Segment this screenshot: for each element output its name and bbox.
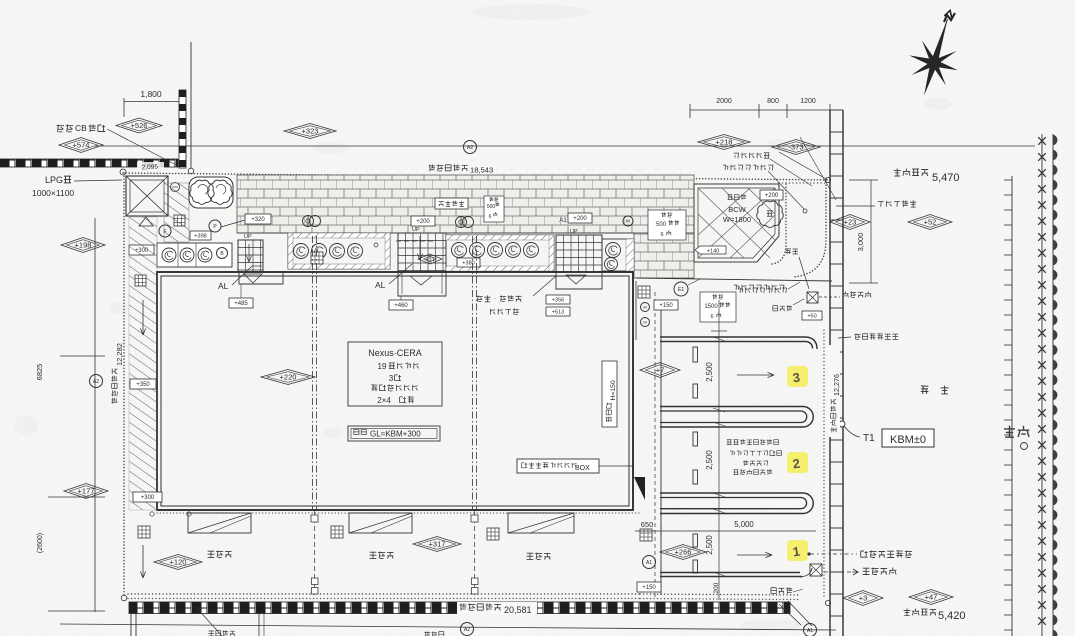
- svg-text:-373: -373: [788, 143, 803, 152]
- svg-text:CB: CB: [75, 123, 87, 133]
- svg-text:+198: +198: [75, 241, 92, 250]
- svg-text:200: 200: [713, 582, 720, 593]
- svg-text:+52: +52: [924, 218, 937, 227]
- svg-text:+398: +398: [194, 233, 206, 239]
- svg-text:+574: +574: [73, 141, 90, 150]
- svg-text:A1: A1: [559, 218, 567, 224]
- svg-text:H=150: H=150: [610, 380, 617, 400]
- svg-text:1200: 1200: [800, 98, 816, 105]
- svg-text:+47: +47: [925, 593, 938, 602]
- svg-text:A2: A2: [93, 379, 99, 385]
- svg-text:+200: +200: [765, 193, 779, 199]
- svg-text:+218: +218: [716, 138, 733, 147]
- svg-text:12,282: 12,282: [115, 343, 124, 366]
- svg-text:+356: +356: [552, 297, 564, 303]
- svg-text:+200: +200: [416, 219, 430, 225]
- svg-text:+140: +140: [707, 249, 719, 255]
- svg-text:+485: +485: [234, 301, 248, 307]
- svg-text:+320: +320: [251, 217, 265, 223]
- svg-text:(2600): (2600): [37, 533, 44, 553]
- svg-text:3: 3: [389, 374, 394, 383]
- svg-text:+350: +350: [136, 382, 150, 388]
- svg-text:19: 19: [378, 362, 387, 371]
- svg-text:+300: +300: [141, 495, 155, 501]
- svg-text:GL=KBM+300: GL=KBM+300: [370, 430, 421, 439]
- svg-text:5,420: 5,420: [938, 610, 966, 622]
- svg-text:UP: UP: [570, 229, 578, 235]
- svg-text:+220: +220: [280, 373, 297, 382]
- svg-text:A2: A2: [464, 627, 470, 633]
- svg-text:AL: AL: [218, 281, 229, 291]
- svg-text:T1: T1: [863, 433, 875, 444]
- svg-text:UP: UP: [244, 234, 252, 240]
- svg-text:+200: +200: [573, 216, 587, 222]
- svg-text:12,276: 12,276: [832, 374, 841, 396]
- svg-text:F: F: [163, 229, 166, 235]
- svg-text:2,500: 2,500: [705, 362, 714, 382]
- svg-text:W: W: [643, 304, 647, 309]
- svg-text:+266: +266: [675, 548, 692, 557]
- svg-text:5,470: 5,470: [932, 172, 960, 184]
- svg-text:18,543: 18,543: [470, 166, 493, 175]
- svg-text:A2: A2: [467, 145, 473, 151]
- svg-text:+177: +177: [78, 487, 95, 496]
- svg-text:3,000: 3,000: [856, 233, 865, 252]
- svg-text:20,581: 20,581: [504, 605, 532, 615]
- svg-text:+317: +317: [429, 540, 446, 549]
- svg-text:6: 6: [489, 214, 492, 220]
- svg-text:6: 6: [710, 314, 713, 320]
- svg-text:W=1800: W=1800: [723, 215, 751, 224]
- svg-text:800: 800: [767, 98, 779, 105]
- svg-text:+3: +3: [859, 594, 868, 603]
- svg-text:+50: +50: [807, 313, 816, 319]
- svg-text:LPG: LPG: [45, 175, 63, 185]
- svg-text:2000: 2000: [716, 98, 732, 105]
- svg-text:2,095: 2,095: [142, 164, 159, 172]
- svg-text:+526: +526: [131, 121, 148, 130]
- svg-text:+7: +7: [656, 366, 665, 375]
- svg-text:A1: A1: [807, 628, 813, 634]
- svg-text:6825: 6825: [35, 364, 44, 381]
- svg-text:650: 650: [641, 520, 654, 529]
- svg-text:Nexus·CERA: Nexus·CERA: [368, 348, 422, 358]
- svg-text:M: M: [643, 319, 646, 324]
- svg-text:UP: UP: [412, 227, 420, 233]
- svg-text:1,800: 1,800: [140, 89, 162, 99]
- svg-text:+460: +460: [394, 303, 408, 309]
- svg-text:KBM±0: KBM±0: [890, 434, 926, 446]
- svg-text:E1: E1: [678, 287, 684, 293]
- svg-text:+150: +150: [642, 585, 656, 591]
- svg-text:+323: +323: [302, 127, 319, 136]
- svg-text:BOX: BOX: [575, 465, 590, 472]
- svg-text:BCW: BCW: [728, 205, 746, 214]
- svg-text:+150: +150: [659, 303, 673, 309]
- svg-text:A1: A1: [646, 560, 652, 566]
- svg-text:AL: AL: [375, 280, 386, 290]
- svg-text:5,000: 5,000: [734, 520, 754, 529]
- svg-text:+120: +120: [170, 558, 187, 567]
- svg-text:+513: +513: [552, 309, 564, 315]
- svg-text:6: 6: [660, 232, 663, 238]
- svg-text:500: 500: [487, 204, 496, 210]
- svg-text:2,500: 2,500: [705, 450, 714, 470]
- svg-text:1500: 1500: [704, 304, 718, 310]
- svg-text:1000×1100: 1000×1100: [32, 188, 74, 198]
- svg-text:2×4: 2×4: [377, 396, 391, 405]
- svg-text:+31: +31: [425, 257, 434, 263]
- svg-text:500: 500: [656, 222, 667, 228]
- svg-text:+23: +23: [844, 218, 857, 227]
